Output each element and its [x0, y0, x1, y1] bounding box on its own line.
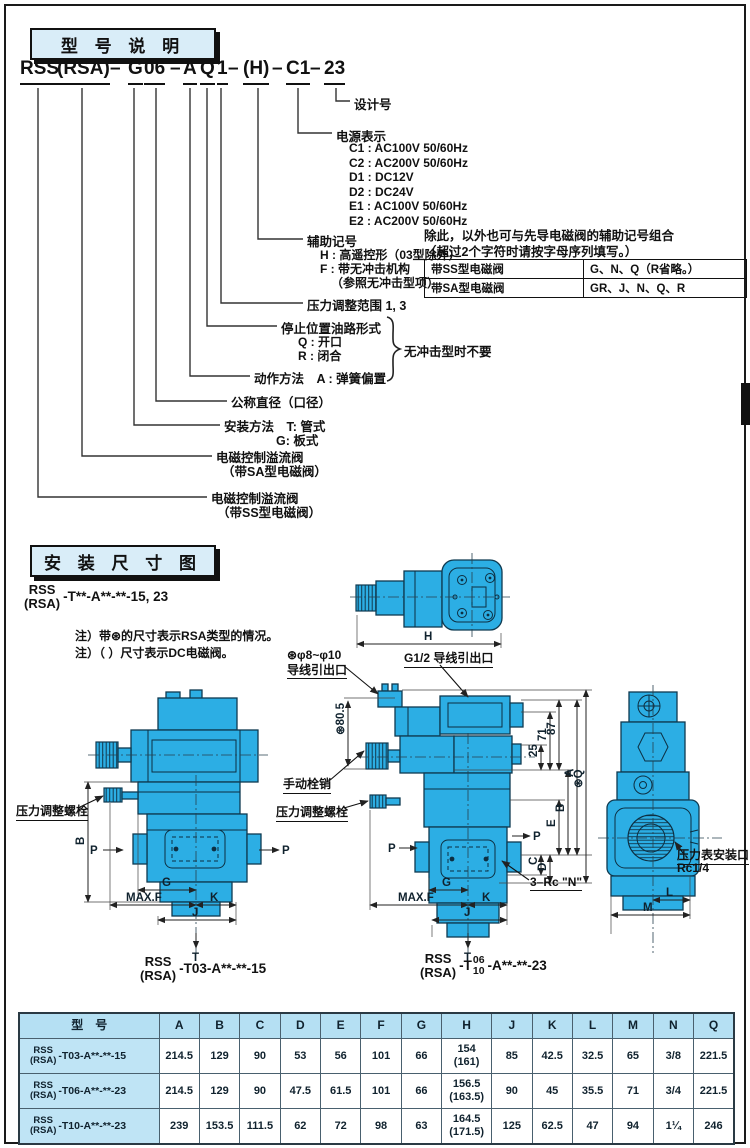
- model-code-right: RSS (RSA) -T 06 10 -A**-**-23: [420, 952, 547, 979]
- dim-cell: 111.5: [240, 1109, 280, 1145]
- dim-p-left2: P: [282, 845, 290, 857]
- dim-cell: 164.5 (171.5): [442, 1109, 492, 1145]
- dim-table-header: Q: [694, 1013, 735, 1039]
- power-options: C1 : AC100V 50/60HzC2 : AC200V 50/60HzD1…: [349, 141, 468, 229]
- code-right-size-top: 06: [473, 955, 485, 966]
- dim-table-header: F: [361, 1013, 401, 1039]
- label-rc-n: 3–Rc "N": [530, 875, 582, 891]
- dim-cell: 129: [199, 1074, 239, 1109]
- dim-cell: 221.5: [694, 1039, 735, 1074]
- code-right-bottom: (RSA): [420, 966, 456, 980]
- dim-cell: 154 (161): [442, 1039, 492, 1074]
- table-row: RSS(RSA)-T10-A**-**-23239153.5111.562729…: [19, 1109, 734, 1145]
- dim-cell: 61.5: [321, 1074, 361, 1109]
- dim-cell: 129: [199, 1039, 239, 1074]
- aux-note-cell: GR、J、N、Q、R: [584, 279, 747, 298]
- model-cell: RSS(RSA)-T10-A**-**-23: [19, 1109, 159, 1145]
- dim-table-header: E: [321, 1013, 361, 1039]
- dim-cell: 153.5: [199, 1109, 239, 1145]
- dim-maxf-c: MAX.F: [398, 892, 434, 904]
- code-right-top: RSS: [420, 952, 456, 966]
- dim-j-c: J: [464, 907, 470, 919]
- dim-g-left: G: [162, 877, 171, 889]
- brace: [387, 317, 400, 381]
- dim-table-header: D: [280, 1013, 320, 1039]
- dim-805: ⊛80.5: [335, 702, 347, 735]
- label-adj-bolt-center: 压力调整螺栓: [276, 803, 348, 822]
- dimension-drawings: .vb{fill:#2caee4;stroke:#0f3a50;stroke-w…: [0, 545, 750, 1015]
- code-right-suffix: -A**-**-23: [488, 958, 547, 973]
- model-cell: RSS(RSA)-T03-A**-**-15: [19, 1039, 159, 1074]
- power-option: C2 : AC200V 50/60Hz: [349, 156, 468, 171]
- dim-k-c: K: [482, 892, 491, 904]
- model-code-left: RSS (RSA) -T03-A**-**-15: [140, 955, 266, 982]
- code-right-t: -T: [459, 958, 472, 973]
- dim-cell: 47: [572, 1109, 612, 1145]
- label-design-no: 设计号: [354, 94, 392, 113]
- dim-p-c1: P: [388, 843, 396, 855]
- dim-b-c: B: [555, 804, 567, 812]
- dim-cell: 3/4: [653, 1074, 693, 1109]
- dim-cell: 66: [401, 1074, 441, 1109]
- label-brace-note: 无冲击型时不要: [404, 341, 492, 360]
- dim-cell: 156.5 (163.5): [442, 1074, 492, 1109]
- dim-table-header: L: [572, 1013, 612, 1039]
- aux-note-cell: G、N、Q（R省略。）: [584, 260, 747, 279]
- dim-cell: 72: [321, 1109, 361, 1145]
- dim-table-header: 型 号: [19, 1013, 159, 1039]
- label-wire1a: ⊛φ8~φ10: [287, 648, 347, 663]
- label-action: 动作方法 A : 弹簧偏置: [254, 368, 386, 387]
- label-wire-outlet-1: ⊛φ8~φ10 导线引出口: [287, 648, 347, 679]
- dim-cell: 45: [532, 1074, 572, 1109]
- label-stop-r: R : 闭合: [298, 347, 341, 364]
- label-wire1b: 导线引出口: [287, 663, 347, 678]
- label-ss2: （带SS型电磁阀）: [217, 502, 321, 521]
- dim-cell: 239: [159, 1109, 199, 1145]
- dim-g-c: G: [442, 877, 451, 889]
- dim-cell: 85: [492, 1039, 532, 1074]
- table-row: RSS(RSA)-T06-A**-**-23214.51299047.561.5…: [19, 1074, 734, 1109]
- power-option: E1 : AC100V 50/60Hz: [349, 199, 468, 214]
- dim-87: 87: [546, 722, 558, 735]
- label-pressure-range: 压力调整范围 1, 3: [307, 295, 406, 314]
- dim-q: ⊛Q: [573, 769, 585, 788]
- dim-table-header: N: [653, 1013, 693, 1039]
- label-gauge-thread: Rc1/4: [677, 861, 709, 875]
- dim-h: H: [424, 631, 432, 643]
- dim-cell: 101: [361, 1074, 401, 1109]
- dim-k-left: K: [210, 892, 219, 904]
- dim-cell: 56: [321, 1039, 361, 1074]
- dim-cell: 101: [361, 1039, 401, 1074]
- valve-side-view-center: P P ⊛80.5 G MAX.F K J T: [329, 665, 592, 964]
- dim-l: L: [666, 887, 673, 899]
- dim-table-header: J: [492, 1013, 532, 1039]
- aux-note-cell: 带SA型电磁阀: [425, 279, 584, 298]
- dimension-table-header-row: 型 号ABCDEFGHJKLMNQ: [19, 1013, 734, 1039]
- aux-note-line2: （超过2个字符时请按字母序列填写。）: [424, 241, 637, 260]
- code-right-size-bottom: 10: [473, 966, 485, 977]
- aux-note-table: 带SS型电磁阀G、N、Q（R省略。）带SA型电磁阀GR、J、N、Q、R: [424, 259, 747, 298]
- dim-table-header: M: [613, 1013, 653, 1039]
- dim-cell: 90: [240, 1074, 280, 1109]
- dim-table-header: H: [442, 1013, 492, 1039]
- aux-note-table-body: 带SS型电磁阀G、N、Q（R省略。）带SA型电磁阀GR、J、N、Q、R: [425, 260, 747, 298]
- dim-cell: 1¼: [653, 1109, 693, 1145]
- dim-table-header: C: [240, 1013, 280, 1039]
- code-left-suffix: -T03-A**-**-15: [179, 961, 266, 976]
- dim-b-left: B: [75, 837, 87, 845]
- power-option: D2 : DC24V: [349, 185, 468, 200]
- dim-cell: 3/8: [653, 1039, 693, 1074]
- dim-p-left1: P: [90, 845, 98, 857]
- dim-table-header: B: [199, 1013, 239, 1039]
- label-wire-outlet-2: G1/2 导线引出口: [404, 649, 493, 668]
- dim-d: D: [537, 863, 549, 871]
- model-cell: RSS(RSA)-T06-A**-**-23: [19, 1074, 159, 1109]
- label-manual-pin: 手动栓销: [283, 775, 331, 794]
- dim-table-body: RSS(RSA)-T03-A**-**-15214.51299053561016…: [19, 1039, 734, 1145]
- dim-cell: 35.5: [572, 1074, 612, 1109]
- dim-cell: 246: [694, 1109, 735, 1145]
- dim-cell: 90: [240, 1039, 280, 1074]
- aux-note-row: 带SA型电磁阀GR、J、N、Q、R: [425, 279, 747, 298]
- valve-top-view: H: [350, 553, 510, 648]
- dim-cell: 63: [401, 1109, 441, 1145]
- dim-table-header: K: [532, 1013, 572, 1039]
- dim-cell: 98: [361, 1109, 401, 1145]
- dim-j-left: J: [192, 907, 198, 919]
- table-row: RSS(RSA)-T03-A**-**-15214.51299053561016…: [19, 1039, 734, 1074]
- dim-cell: 214.5: [159, 1074, 199, 1109]
- dimension-table: 型 号ABCDEFGHJKLMNQ RSS(RSA)-T03-A**-**-15…: [18, 1012, 735, 1145]
- dim-cell: 62.5: [532, 1109, 572, 1145]
- valve-side-view-left: B P P G MAX.F K J T: [75, 690, 290, 964]
- aux-note-cell: 带SS型电磁阀: [425, 260, 584, 279]
- dim-table-header: G: [401, 1013, 441, 1039]
- dim-cell: 47.5: [280, 1074, 320, 1109]
- dim-e: E: [546, 819, 558, 827]
- code-left-bottom: (RSA): [140, 969, 176, 983]
- catalog-page: { "sections": { "model_title": "型 号 说 明"…: [0, 0, 750, 1148]
- label-aux-f2: （参照无冲击型项）: [331, 274, 439, 291]
- dim-cell: 71: [613, 1074, 653, 1109]
- label-sa2: （带SA型电磁阀）: [222, 461, 327, 480]
- dim-cell: 62: [280, 1109, 320, 1145]
- dim-cell: 32.5: [572, 1039, 612, 1074]
- dim-cell: 125: [492, 1109, 532, 1145]
- aux-note-row: 带SS型电磁阀G、N、Q（R省略。）: [425, 260, 747, 279]
- label-adj-bolt-left: 压力调整螺栓: [16, 802, 88, 821]
- dim-p-c2: P: [533, 831, 541, 843]
- dim-cell: 214.5: [159, 1039, 199, 1074]
- valve-front-view-right: L M: [598, 685, 722, 953]
- dim-maxf-left: MAX.F: [126, 892, 162, 904]
- dim-cell: 66: [401, 1039, 441, 1074]
- dim-cell: 94: [613, 1109, 653, 1145]
- code-left-top: RSS: [140, 955, 176, 969]
- dim-cell: 42.5: [532, 1039, 572, 1074]
- power-option: D1 : DC12V: [349, 170, 468, 185]
- dim-cell: 53: [280, 1039, 320, 1074]
- dim-table-header: A: [159, 1013, 199, 1039]
- dim-cell: 65: [613, 1039, 653, 1074]
- power-option: C1 : AC100V 50/60Hz: [349, 141, 468, 156]
- dim-cell: 90: [492, 1074, 532, 1109]
- dim-cell: 221.5: [694, 1074, 735, 1109]
- dim-25: 25: [528, 744, 540, 757]
- dim-m: M: [643, 902, 653, 914]
- label-diameter: 公称直径（口径）: [231, 392, 331, 411]
